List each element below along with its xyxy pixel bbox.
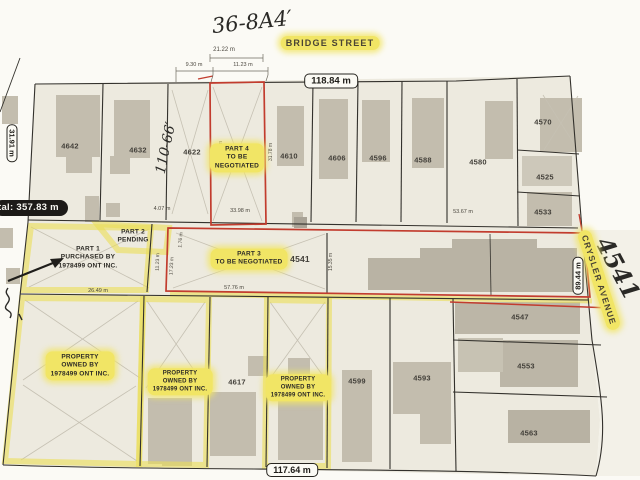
- lot-south-4563: 4563: [520, 429, 538, 438]
- dim-part3-mid: 15.35 m: [328, 253, 334, 271]
- survey-linework: [0, 0, 640, 480]
- lot-north-4642: 4642: [61, 142, 79, 151]
- owned3-line2: OWNED BY: [271, 384, 326, 392]
- bridge-street-label: BRIDGE STREET: [281, 36, 380, 50]
- part3-line2: TO BE NEGOTIATED: [216, 259, 283, 267]
- top-width-label: 118.84 m: [304, 74, 358, 89]
- dim-part4-bottom: 33.98 m: [230, 208, 250, 214]
- lot-east-4525: 4525: [536, 173, 554, 182]
- part1-line3: 1978499 ONT INC.: [59, 262, 118, 270]
- lot-north-4610: 4610: [280, 152, 298, 161]
- part1-line1: PART 1: [59, 245, 118, 253]
- lot-south-4547: 4547: [511, 313, 529, 322]
- lot-north-4580: 4580: [469, 158, 487, 167]
- dimension-lines: [176, 54, 268, 82]
- dim-west-split: 9.30 m: [186, 62, 203, 68]
- lot-south-4593: 4593: [413, 374, 431, 383]
- part3-line1: PART 3: [216, 251, 283, 259]
- owned1-line3: 1978499 ONT INC.: [51, 370, 110, 378]
- owned2-line3: 1978499 ONT INC.: [153, 386, 208, 394]
- owned2-line2: OWNED BY: [153, 378, 208, 386]
- lot-north-4622: 4622: [183, 148, 201, 157]
- lot-east-4533: 4533: [534, 208, 552, 217]
- bottom-width-label: 117.64 m: [266, 463, 318, 477]
- part3-label: PART 3 TO BE NEGOTIATED: [211, 249, 288, 270]
- survey-plan-scan: 36-8A4′ 110-66′ 4541 BRIDGE STREET CRYSL…: [0, 0, 640, 480]
- part2-line2: PENDING: [117, 237, 148, 245]
- lot-north-4632: 4632: [129, 146, 147, 155]
- dim-part1-east: 11.23 m: [155, 253, 162, 271]
- dim-part3-bottom: 57.76 m: [224, 285, 244, 291]
- lot-south-4599: 4599: [348, 377, 366, 386]
- owned-parcel-1-label: PROPERTY OWNED BY 1978499 ONT INC.: [46, 351, 115, 380]
- part4-line1: PART 4: [215, 145, 259, 153]
- dim-east-split: 11.23 m: [233, 62, 252, 68]
- part1-label: PART 1 PURCHASED BY 1978499 ONT INC.: [59, 245, 118, 270]
- dim-part1-bottom: 26.49 m: [88, 288, 108, 294]
- lot-north-4588: 4588: [414, 156, 432, 165]
- dim-part4-east: 31.78 m: [268, 143, 274, 161]
- part1-line2: PURCHASED BY: [59, 254, 118, 262]
- owned3-line1: PROPERTY: [271, 376, 326, 384]
- dim-bridge-frontage: 21.22 m: [213, 47, 235, 53]
- part4-label: PART 4 TO BE NEGOTIATED: [210, 143, 264, 172]
- dim-part3-west: 17.23 m: [169, 257, 176, 275]
- dim-gap: 4.07 m: [154, 206, 171, 212]
- lot-south-4617: 4617: [228, 378, 246, 387]
- owned2-line1: PROPERTY: [153, 370, 208, 378]
- owned1-line1: PROPERTY: [51, 353, 110, 361]
- part4-line3: NEGOTIATED: [215, 162, 259, 170]
- part2-line1: PART 2: [117, 229, 148, 237]
- lot-east-4570: 4570: [534, 118, 552, 127]
- lot-north-4606: 4606: [328, 154, 346, 163]
- dim-east-block: 53.67 m: [453, 209, 473, 215]
- part4-line2: TO BE: [215, 154, 259, 162]
- part3-lot-number: 4541: [290, 254, 310, 264]
- lot-north-4596: 4596: [369, 154, 387, 163]
- owned-parcel-3-label: PROPERTY OWNED BY 1978499 ONT INC.: [266, 374, 331, 401]
- owned-parcel-2-label: PROPERTY OWNED BY 1978499 ONT INC.: [148, 368, 213, 395]
- lot-south-4553: 4553: [517, 362, 535, 371]
- right-depth-label: 89.44 m: [573, 257, 584, 295]
- owned1-line2: OWNED BY: [51, 362, 110, 370]
- left-width-label: 31.91 m: [7, 124, 18, 162]
- left-total-label: tal: 357.83 m: [0, 200, 68, 216]
- owned3-line3: 1978499 ONT INC.: [271, 392, 326, 400]
- part2-label: PART 2 PENDING: [117, 229, 148, 246]
